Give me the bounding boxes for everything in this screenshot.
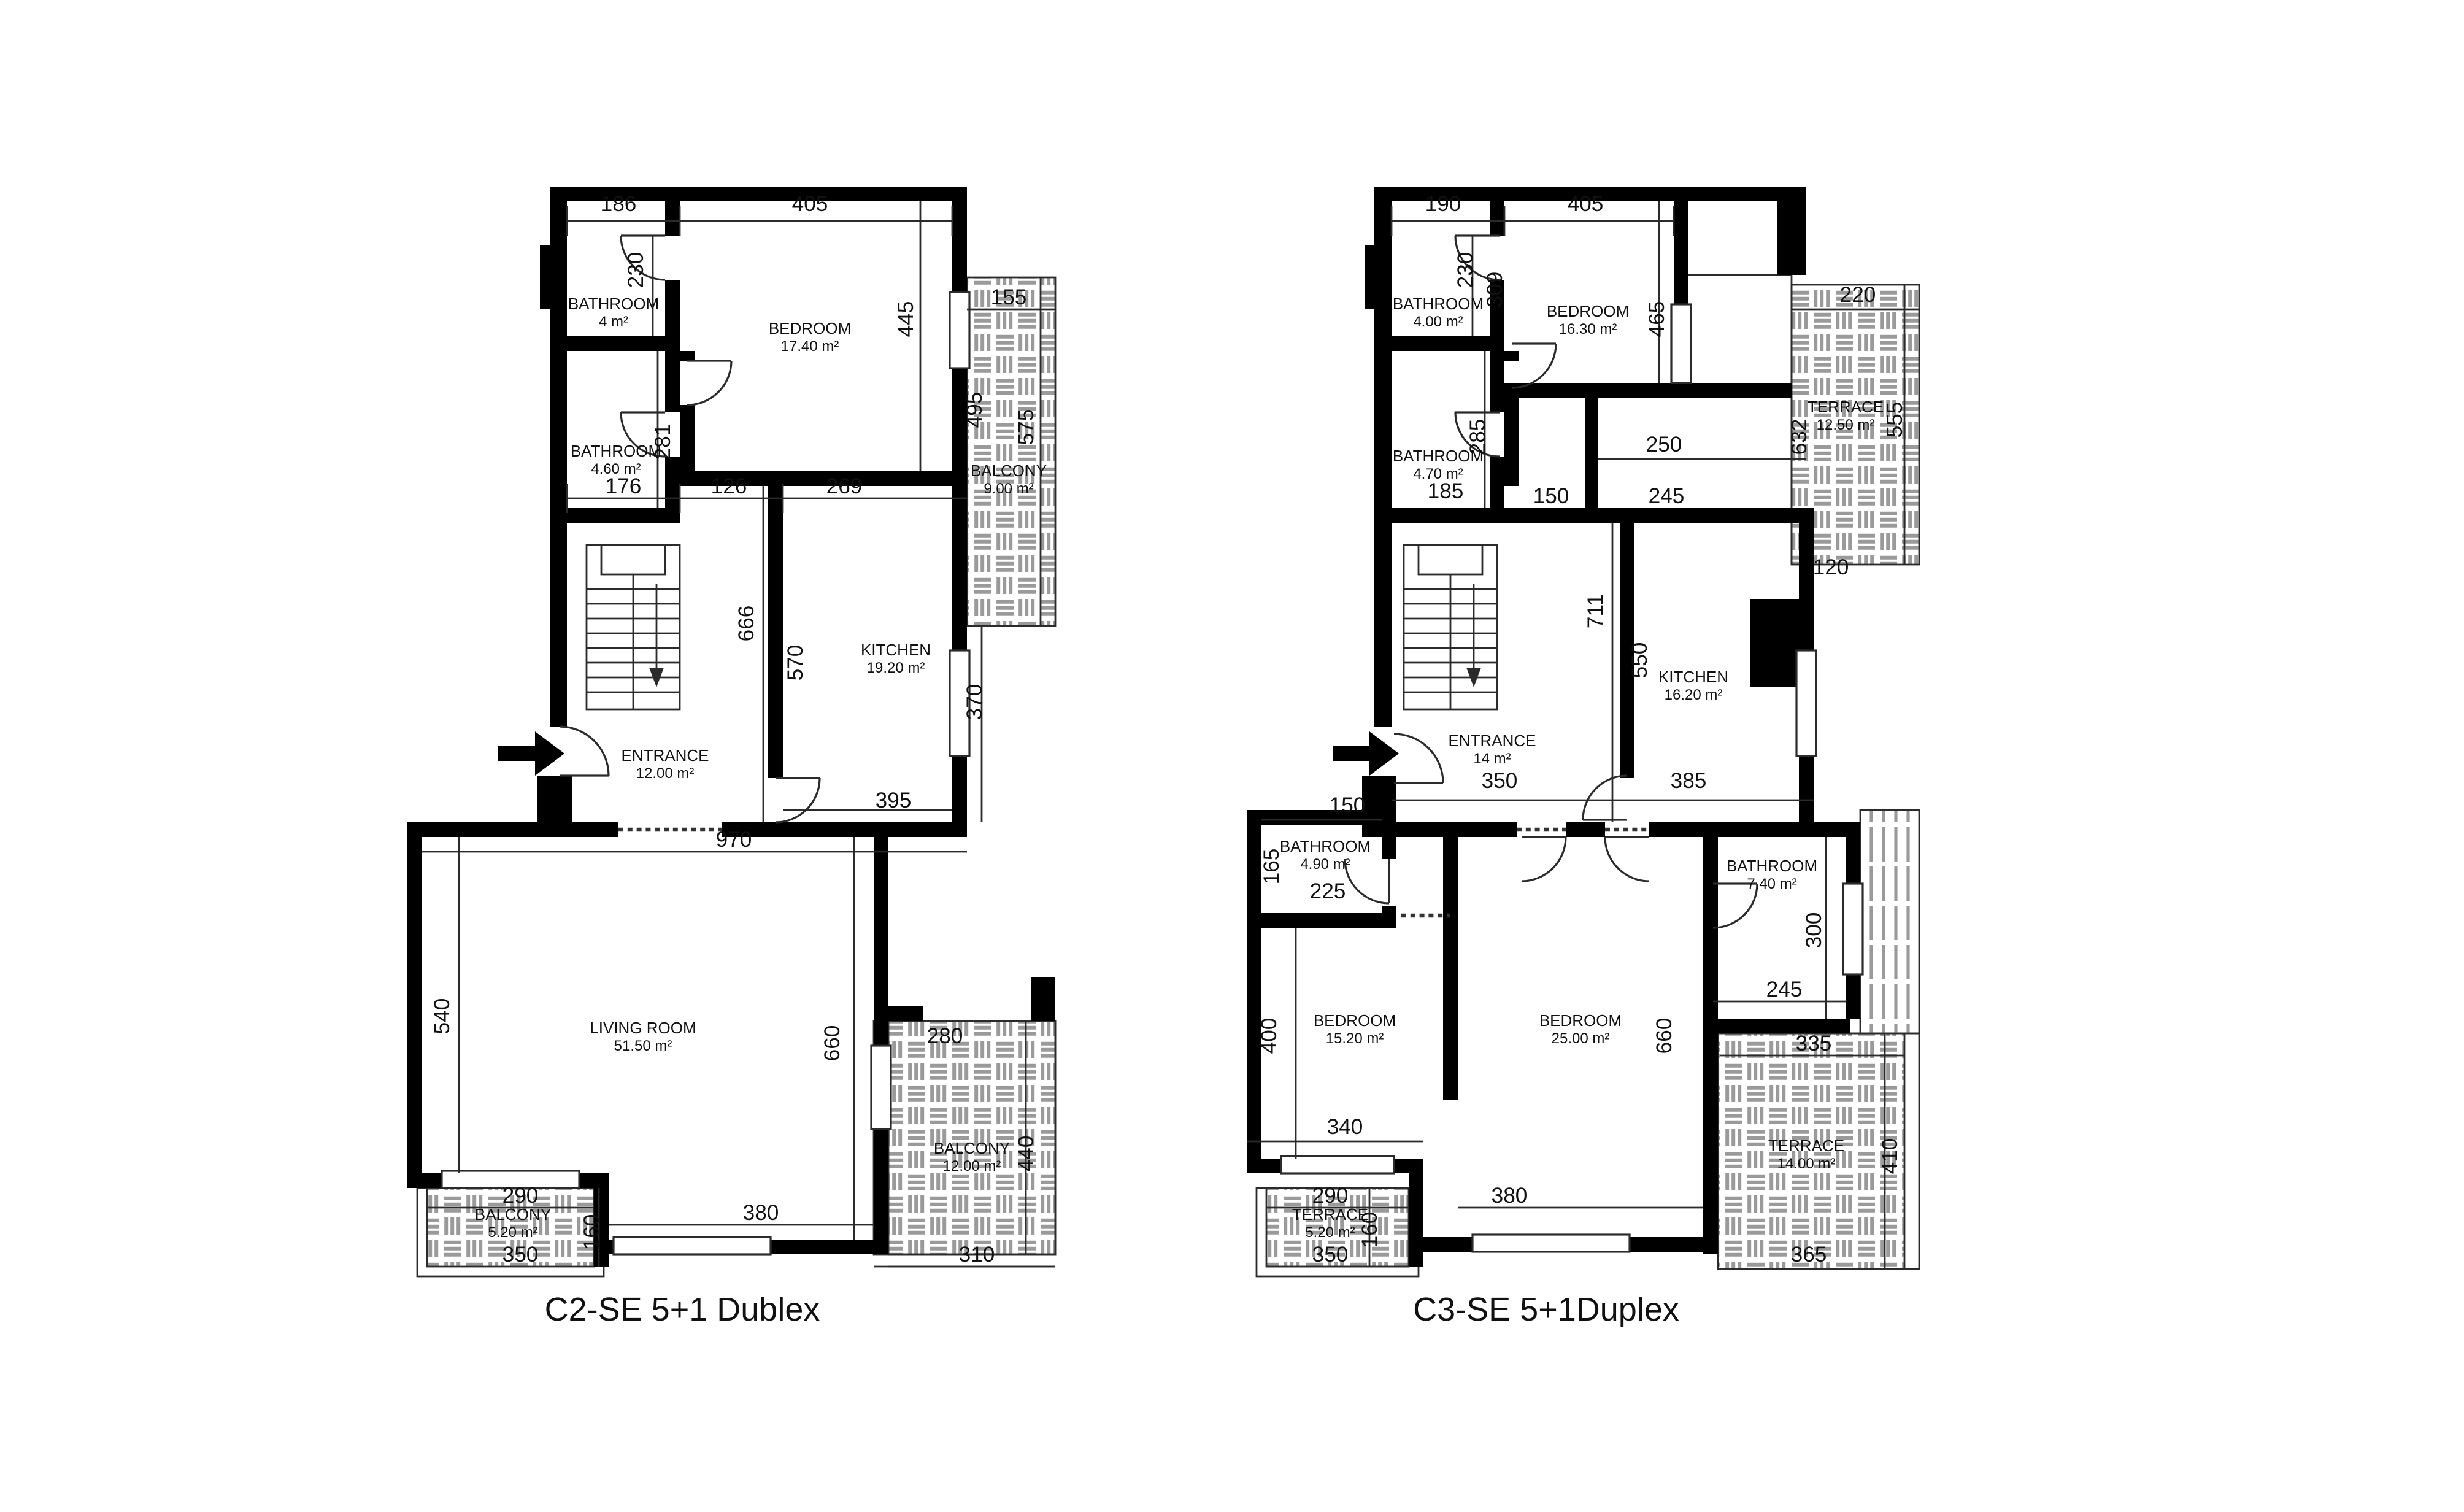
plan-title-c2: C2-SE 5+1 Dublex <box>545 1291 820 1328</box>
room-name: ENTRANCE <box>621 746 709 765</box>
dim-label: 350 <box>502 1243 539 1267</box>
room-name: LIVING ROOM <box>590 1019 696 1037</box>
room-name: BATHROOM <box>571 442 661 460</box>
dim-label: 370 <box>963 684 987 720</box>
plan-title-c3: C3-SE 5+1Duplex <box>1413 1291 1679 1328</box>
dim-label: 340 <box>1327 1115 1363 1139</box>
room-area: 19.20 m² <box>867 660 925 676</box>
dim-label: 970 <box>716 828 752 852</box>
room-area: 4 m² <box>599 314 628 330</box>
dim-label: 160 <box>580 1214 604 1251</box>
dim-label: 310 <box>959 1243 995 1267</box>
room-name: BATHROOM <box>1280 837 1371 855</box>
room-name: BALCONY <box>934 1139 1010 1157</box>
room-area: 14.00 m² <box>1777 1155 1836 1172</box>
room-name: BEDROOM <box>769 319 851 337</box>
room-name: BEDROOM <box>1539 1011 1622 1030</box>
room-name: BATHROOM <box>1393 295 1484 313</box>
dim-label: 285 <box>1466 419 1490 455</box>
dim-label: 440 <box>1014 1136 1038 1172</box>
room-name: KITCHEN <box>861 641 931 659</box>
room-area: 16.30 m² <box>1559 321 1617 337</box>
dim-label: 120 <box>1813 555 1849 579</box>
plan-c3: BATHROOM 4.00 m² BEDROOM 16.30 m² BATHRO… <box>1247 187 1919 1328</box>
room-area: 5.20 m² <box>488 1224 537 1241</box>
floor-plan-canvas: BATHROOM 4 m² BEDROOM 17.40 m² BATHROOM … <box>0 0 2464 1512</box>
plan-c2: BATHROOM 4 m² BEDROOM 17.40 m² BATHROOM … <box>407 187 1055 1328</box>
dim-label: 570 <box>783 645 807 681</box>
dim-label: 380 <box>1492 1184 1528 1208</box>
dim-label: 230 <box>1453 252 1477 288</box>
room-area: 12.50 m² <box>1817 417 1875 433</box>
dim-label: 335 <box>1796 1032 1832 1055</box>
room-name: BATHROOM <box>1727 857 1817 875</box>
room-name: TERRACE <box>1808 398 1884 416</box>
dim-label: 176 <box>606 474 642 498</box>
pergola-stripe <box>1860 810 1919 1033</box>
dim-label: 660 <box>820 1025 844 1062</box>
dim-label: 555 <box>1883 402 1907 438</box>
room-name: TERRACE <box>1768 1136 1844 1155</box>
room-area: 51.50 m² <box>614 1038 672 1054</box>
dim-label: 350 <box>1312 1243 1349 1267</box>
dim-label: 711 <box>1584 594 1607 628</box>
dim-label: 400 <box>1257 1018 1281 1054</box>
dim-label: 186 <box>601 192 637 216</box>
stairs-icon <box>587 545 680 709</box>
room-name: BALCONY <box>475 1205 551 1224</box>
dim-label: 126 <box>711 474 747 498</box>
dim-label: 160 <box>1358 1212 1382 1248</box>
dim-label: 150 <box>1533 484 1569 508</box>
dim-label: 220 <box>1840 283 1876 307</box>
dim-label: 165 <box>1260 849 1284 885</box>
room-area: 12.00 m² <box>636 765 695 782</box>
wall-opening-dashed <box>1401 830 1649 916</box>
room-area: 15.20 m² <box>1326 1030 1384 1047</box>
dim-label: 632 <box>1787 419 1811 455</box>
room-name: TERRACE <box>1292 1205 1368 1224</box>
room-area: 14 m² <box>1473 750 1511 767</box>
dim-label: 281 <box>651 424 675 460</box>
dim-label: 150 <box>1330 793 1366 817</box>
dim-label: 380 <box>743 1201 779 1225</box>
dim-label: 250 <box>1646 433 1682 457</box>
room-name: BATHROOM <box>568 295 659 313</box>
dim-label: 540 <box>430 998 454 1035</box>
room-area: 5.20 m² <box>1305 1224 1355 1241</box>
dim-label: 495 <box>963 392 987 428</box>
dim-label: 410 <box>1878 1138 1902 1174</box>
windows <box>442 292 969 1254</box>
room-area: 17.40 m² <box>781 338 839 355</box>
room-name: ENTRANCE <box>1448 731 1536 750</box>
dim-label: 445 <box>894 301 918 337</box>
room-area: 25.00 m² <box>1552 1030 1610 1047</box>
room-area: 4.90 m² <box>1300 856 1350 873</box>
dim-label: 280 <box>927 1024 963 1048</box>
floor-plan-page: { "colors": { "wall": "#000000", "hatch_… <box>0 0 2464 1512</box>
dim-label: 465 <box>1645 301 1669 337</box>
dim-label: 290 <box>1312 1184 1349 1208</box>
dim-label: 269 <box>826 474 863 498</box>
room-area: 12.00 m² <box>943 1158 1001 1174</box>
entry-arrow-icon <box>498 731 564 776</box>
dim-label: 405 <box>1568 192 1604 216</box>
room-name: BEDROOM <box>1314 1011 1396 1030</box>
balcony-hatch-9 <box>967 277 1055 626</box>
dim-label: 550 <box>1628 642 1652 679</box>
room-area: 7.40 m² <box>1747 876 1796 892</box>
room-area: 16.20 m² <box>1665 687 1723 703</box>
room-area: 4.00 m² <box>1413 314 1463 330</box>
dim-label: 575 <box>1014 409 1038 445</box>
room-name: BALCONY <box>971 461 1047 480</box>
room-area: 9.00 m² <box>984 480 1033 497</box>
dim-label: 190 <box>1425 192 1461 216</box>
dim-label: 350 <box>1482 769 1518 793</box>
dim-label: 405 <box>792 192 828 216</box>
dim-label: 155 <box>991 285 1027 309</box>
dim-label: 245 <box>1649 484 1685 508</box>
dim-label: 385 <box>1671 769 1707 793</box>
dim-label: 660 <box>1652 1018 1676 1054</box>
dim-label: 230 <box>624 252 648 288</box>
dim-label: 225 <box>1310 879 1346 903</box>
dim-label: 185 <box>1428 479 1464 503</box>
dim-label: 245 <box>1766 978 1803 1001</box>
dim-label: 365 <box>1791 1243 1827 1267</box>
dim-label: 290 <box>502 1184 539 1208</box>
dim-label: 300 <box>1802 912 1826 949</box>
room-name: KITCHEN <box>1658 668 1728 686</box>
room-name: BEDROOM <box>1547 302 1629 320</box>
dim-label: 666 <box>734 606 758 642</box>
dim-label: 395 <box>876 789 912 812</box>
entry-arrow-icon <box>1333 731 1399 776</box>
stairs-icon <box>1404 545 1497 709</box>
dim-label: 309 <box>1483 272 1507 308</box>
